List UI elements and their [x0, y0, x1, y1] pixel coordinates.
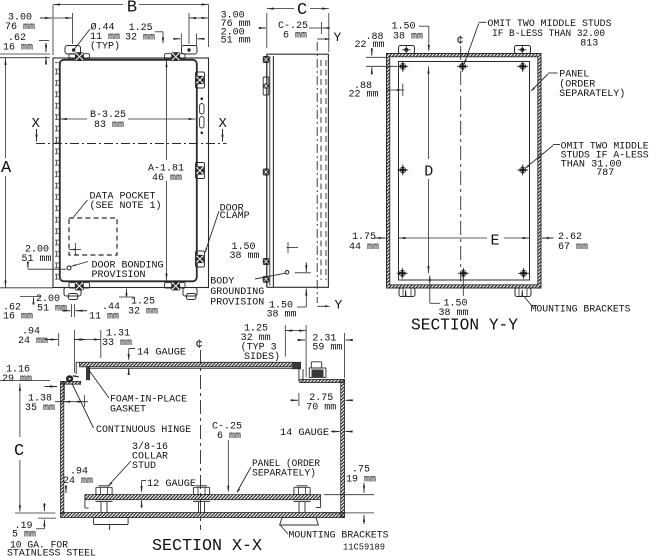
svg-text:GASKET: GASKET [110, 404, 146, 415]
svg-text:SIDES): SIDES) [244, 351, 280, 363]
svg-text:38 mm: 38 mm [267, 309, 297, 320]
svg-text:Y: Y [335, 298, 343, 313]
svg-text:A: A [1, 159, 12, 178]
svg-text:STUD: STUD [132, 461, 156, 472]
svg-text:38 mm: 38 mm [393, 31, 423, 42]
svg-text:46 mm: 46 mm [152, 173, 182, 184]
svg-text:51 mm: 51 mm [37, 304, 67, 315]
svg-text:CONTINUOUS HINGE: CONTINUOUS HINGE [96, 425, 191, 436]
svg-text:Y: Y [334, 30, 342, 45]
svg-text:(TYP): (TYP) [90, 41, 120, 53]
svg-text:51 mm: 51 mm [221, 35, 251, 46]
svg-text:76 mm: 76 mm [221, 19, 251, 30]
svg-text:24 mm: 24 mm [63, 476, 93, 487]
svg-text:PROVISION: PROVISION [92, 270, 146, 281]
svg-text:MOUNTING BRACKETS: MOUNTING BRACKETS [531, 304, 631, 315]
svg-text:¢: ¢ [196, 338, 203, 352]
svg-text:5 mm: 5 mm [12, 530, 36, 541]
svg-text:813: 813 [580, 38, 598, 49]
svg-text:B: B [127, 0, 137, 18]
svg-text:22 mm: 22 mm [349, 89, 379, 100]
svg-text:83 mm: 83 mm [94, 120, 124, 131]
svg-text:11C59189: 11C59189 [343, 543, 385, 553]
svg-text:(SEE NOTE 1): (SEE NOTE 1) [90, 200, 162, 212]
svg-text:¢: ¢ [457, 34, 464, 48]
svg-text:C: C [14, 442, 24, 461]
svg-text:SECTION X-X: SECTION X-X [152, 536, 262, 555]
svg-text:E: E [491, 233, 500, 250]
svg-text:D: D [424, 164, 433, 181]
svg-text:33 mm: 33 mm [102, 338, 132, 349]
svg-text:STAINLESS STEEL: STAINLESS STEEL [7, 549, 96, 556]
svg-text:SEPARATELY): SEPARATELY) [252, 468, 316, 480]
svg-text:67 mm: 67 mm [558, 242, 588, 253]
svg-text:MOUNTING BRACKETS: MOUNTING BRACKETS [289, 531, 389, 542]
svg-text:59 mm: 59 mm [312, 342, 342, 353]
svg-text:11 mm: 11 mm [89, 311, 119, 322]
svg-text:GROUNDING: GROUNDING [210, 287, 264, 298]
svg-text:51 mm: 51 mm [22, 254, 52, 265]
svg-text:38 mm: 38 mm [230, 251, 260, 262]
svg-text:SEPARATELY): SEPARATELY) [559, 88, 625, 100]
svg-text:6 mm: 6 mm [217, 431, 241, 442]
svg-text:PROVISION: PROVISION [210, 297, 264, 308]
svg-text:70 mm: 70 mm [306, 403, 336, 414]
svg-text:76 mm: 76 mm [5, 22, 35, 33]
svg-text:16 mm: 16 mm [3, 312, 33, 323]
svg-text:14 GAUGE: 14 GAUGE [137, 347, 186, 358]
svg-text:12 GAUGE: 12 GAUGE [147, 479, 196, 490]
svg-text:35 mm: 35 mm [25, 403, 55, 414]
svg-text:C: C [297, 1, 307, 20]
svg-text:787: 787 [596, 168, 614, 179]
svg-text:32 mm: 32 mm [128, 307, 158, 318]
svg-text:24 mm: 24 mm [18, 336, 48, 347]
svg-text:32 mm: 32 mm [125, 33, 155, 44]
svg-text:14 GAUGE: 14 GAUGE [280, 428, 329, 439]
svg-text:19 mm: 19 mm [346, 474, 376, 485]
svg-text:22 mm: 22 mm [355, 40, 385, 51]
svg-text:44 mm: 44 mm [349, 242, 379, 253]
svg-text:6 mm: 6 mm [283, 31, 307, 42]
svg-text:29 mm: 29 mm [2, 374, 32, 385]
svg-text:CLAMP: CLAMP [220, 211, 250, 222]
svg-text:SECTION Y-Y: SECTION Y-Y [411, 316, 518, 335]
svg-text:16 mm: 16 mm [3, 43, 33, 54]
